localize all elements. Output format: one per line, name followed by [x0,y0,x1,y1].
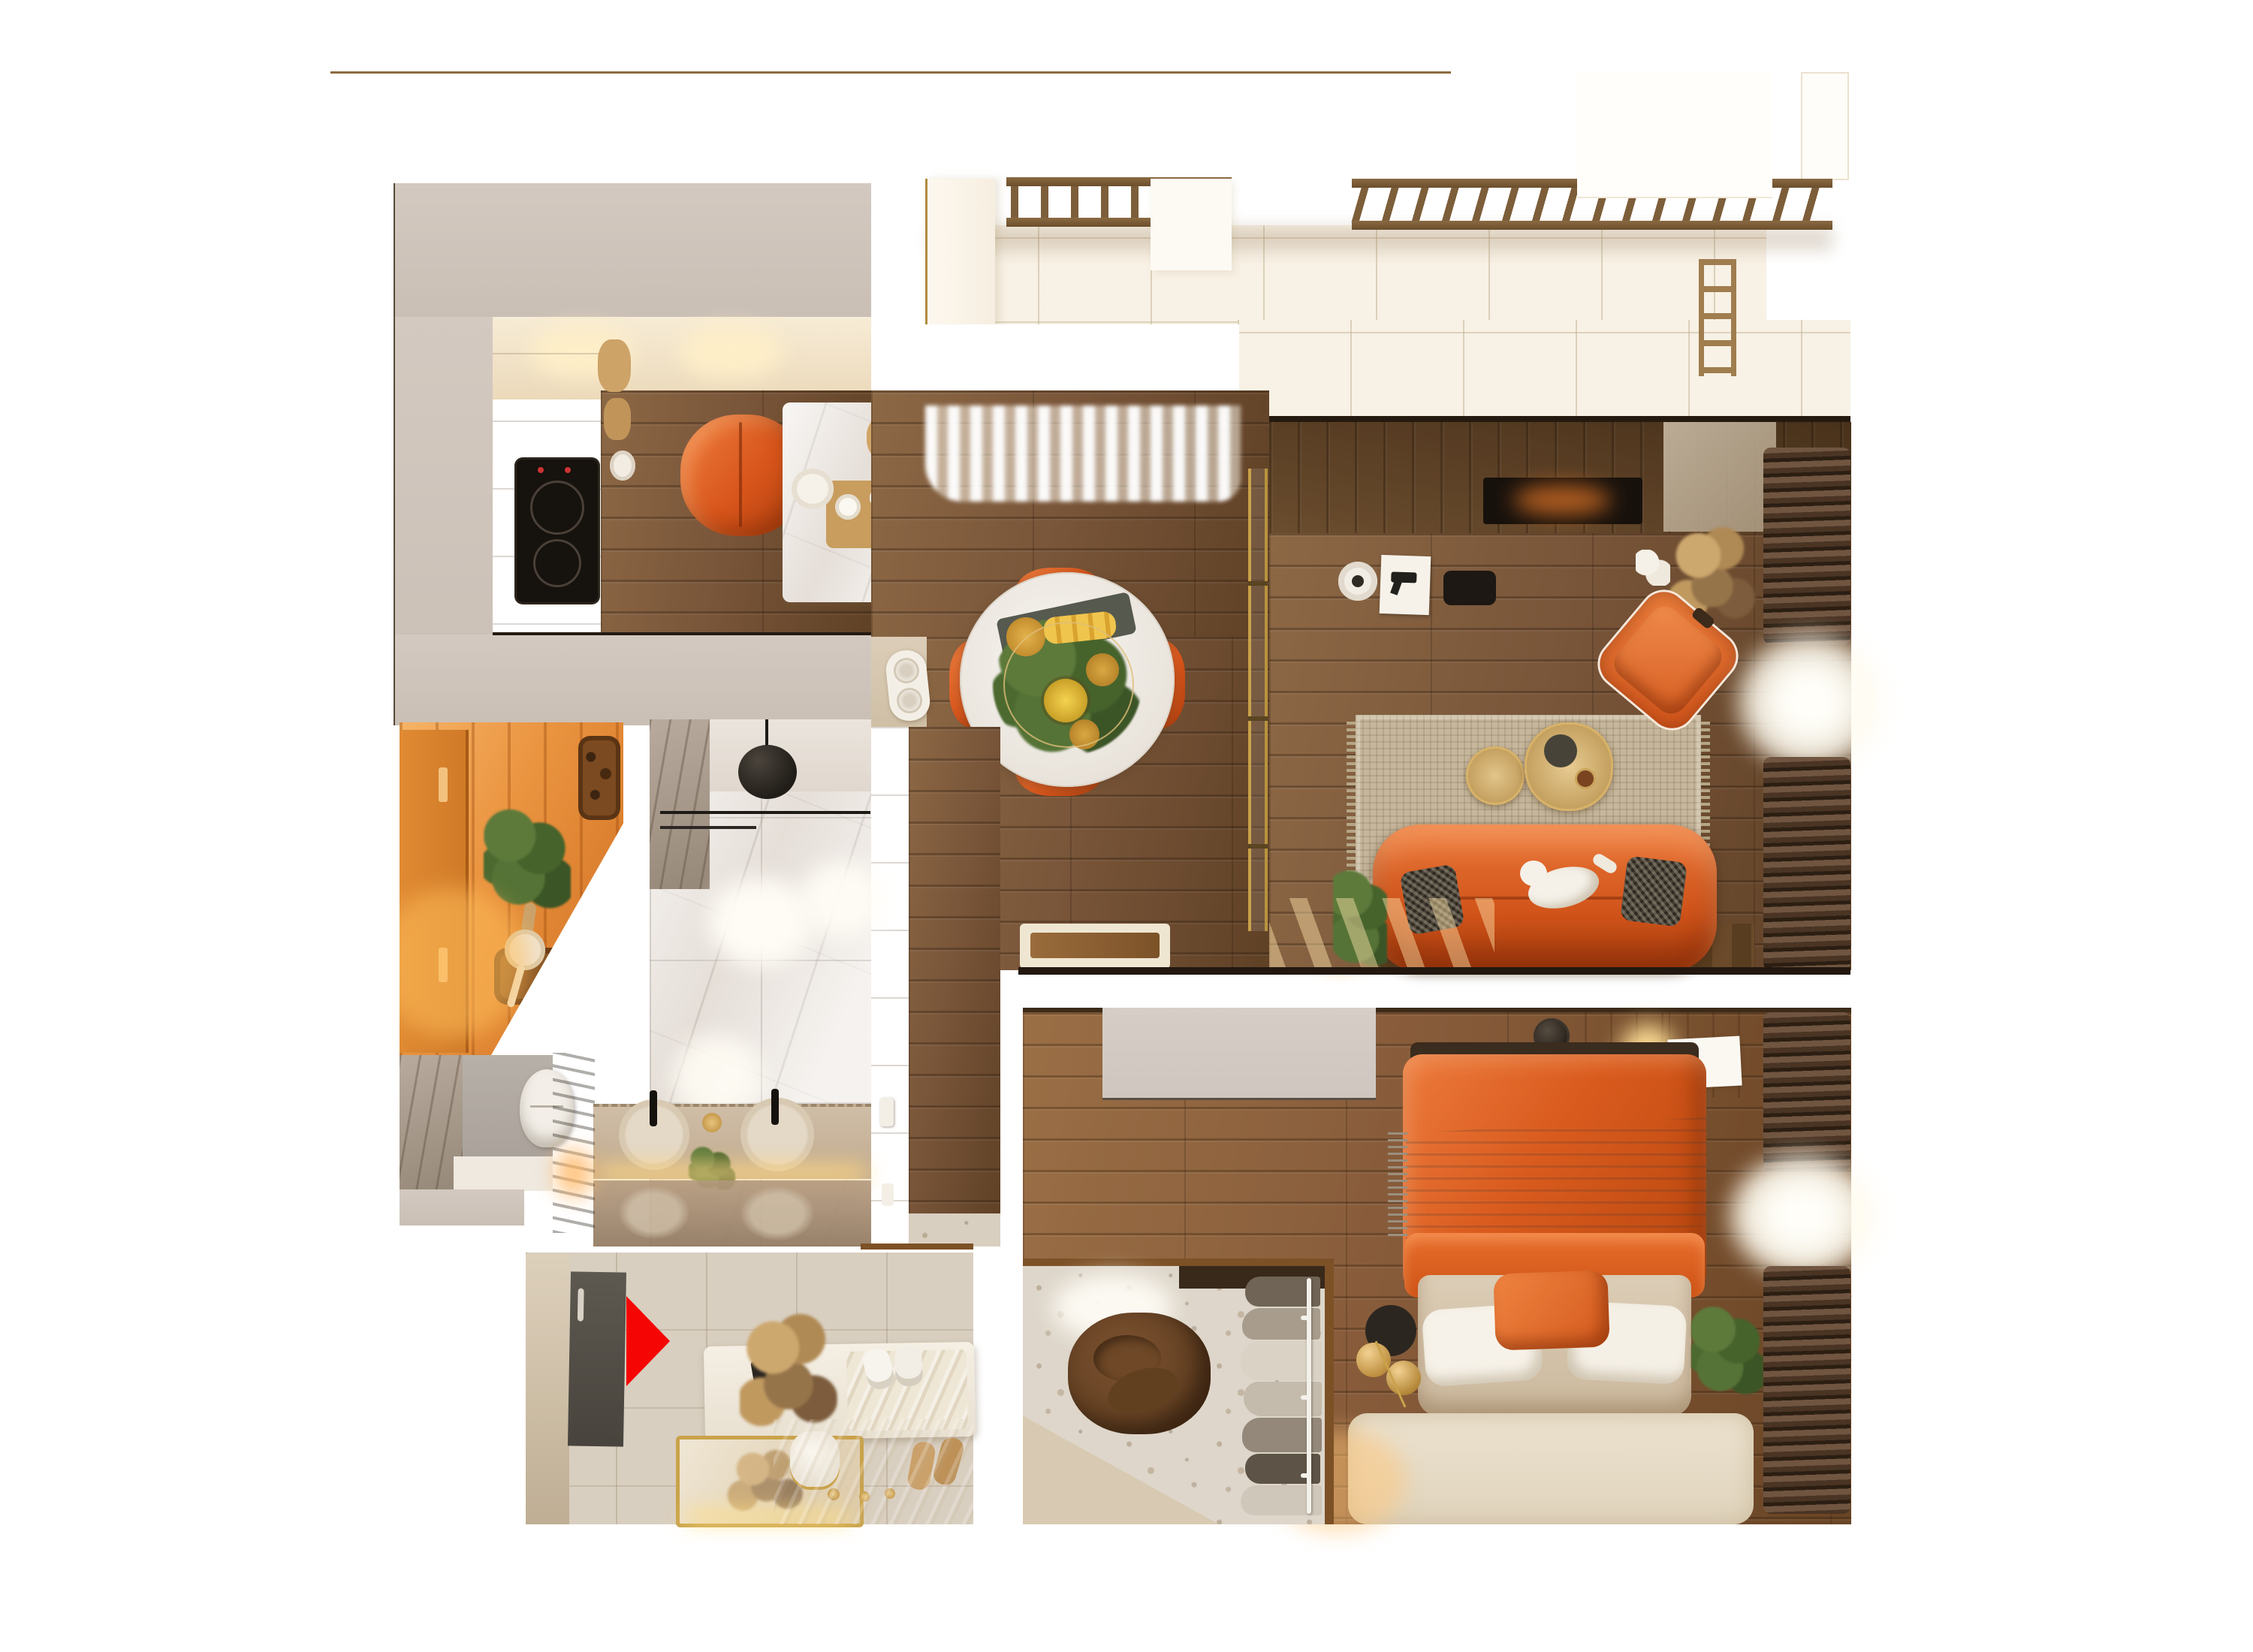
speaker-cone-2 [895,686,923,714]
kitchen-wall-top [395,183,871,317]
room-bathroom [650,719,871,1247]
soundbar [1443,571,1496,605]
revolver-frame [1380,555,1431,615]
tv-artwork [1483,478,1642,524]
dining-doormat [1020,924,1170,969]
bedroom-curtain-lower [1763,1266,1850,1514]
balcony-top-right-wall [1577,72,1772,198]
bean-bag [1068,1313,1211,1434]
coffee-table-small [1466,746,1525,805]
top-right-faint-frame [1801,72,1849,180]
rug-fringe-left [1347,719,1356,880]
railing-bottom-bar [1352,221,1832,230]
sofa-pillow-right [1620,855,1687,927]
sauna-heater [578,736,620,820]
room-entry [526,1244,973,1526]
throw-fringe [1388,1131,1407,1236]
pillow-orange-center [1493,1270,1609,1350]
entry-left-wall [526,1254,569,1524]
kitchen-cooktop [517,460,598,602]
bedroom-curtain-upper [1763,1012,1850,1171]
entry-top-line [861,1244,973,1250]
corridor-wall [871,727,909,1247]
kitchen-glow-2 [679,326,784,378]
burner-large [530,481,584,535]
entry-ribbed-floor [774,1419,973,1524]
reflected-sink-2 [740,1186,814,1241]
rack-hook-1 [1301,1316,1311,1320]
living-window-light [1735,631,1885,773]
sun-streaks [1269,898,1494,970]
partition-rail-left [1248,469,1251,931]
entry-door-mat [568,1271,626,1446]
living-bottom-wall-line [1018,967,1850,975]
shower-glass-line [660,811,870,814]
corridor-floor-transition [909,1213,1000,1247]
table-cup [1577,770,1594,787]
speaker-cone-1 [892,656,920,684]
plate [792,469,834,509]
closet-right-wall [1325,1259,1334,1524]
tray-cup-1 [835,494,861,520]
light-switch-1 [880,1098,894,1126]
faucet-2 [771,1089,779,1125]
room-closet [1023,1259,1334,1524]
sneaker-2 [894,1345,924,1387]
sauna-glow [377,888,527,1038]
birch-whisk [484,803,571,910]
closet-top-wall [1023,1259,1334,1266]
tv-glow [1513,485,1611,515]
wc-wall-band [400,1189,524,1225]
dining-sheer-curtain [925,405,1241,502]
chair-seam [739,422,742,527]
entrance-arrow [626,1296,670,1386]
room-wc [400,1053,595,1233]
wardrobe-top [1102,1008,1376,1100]
balcony-wall-pillar-b [1151,179,1232,270]
pendant-lamp [738,745,797,799]
rack-hook-3 [1301,1473,1311,1478]
wc-divider-wall [553,1053,595,1233]
wall-cutting-board-2 [604,398,631,440]
doormat-wood-board [1030,933,1160,958]
white-cat [1523,852,1607,915]
partition-crossbar-1 [1248,581,1268,586]
corridor-floor [909,727,1000,1216]
white-pebbles [1636,550,1670,586]
room-sauna [400,722,623,1059]
railing-shadow [931,227,1832,251]
dining-top-white-wall [871,324,1239,392]
partition-rail-right [1265,469,1268,931]
wall-cup [610,451,635,481]
burner-large-2 [533,539,581,587]
wall-cutting-board [598,339,631,392]
cat-tail [1591,852,1618,876]
speaker-ring [1338,562,1377,601]
vanity-underglow [597,1165,867,1182]
coffee-table-large [1525,722,1613,811]
floor-light-bloom-2 [800,862,882,937]
revolver-grip [1390,580,1402,595]
top-wall-line [330,71,1451,74]
gold-wire-stand [1003,622,1134,748]
kitchen-floor-edge-line [493,632,871,635]
living-curtain-upper [1763,448,1850,644]
bed [1403,1042,1706,1416]
door-handle [578,1289,584,1322]
living-curtain-lower [1763,757,1850,970]
cat-head [1520,861,1547,886]
bedroom-rug [1348,1413,1754,1524]
partition-crossbar-3 [1248,844,1268,849]
bathroom-gray-panel [650,719,710,889]
shower-glass-line-2 [660,826,756,829]
floor-light-bloom-1 [708,877,813,967]
vanity-mirror-reflection [593,1180,871,1247]
gold-glass-partition [1248,469,1268,931]
bedroom-window-light [1727,1152,1877,1280]
reflected-sink-1 [619,1186,689,1239]
faucet-1 [650,1090,657,1126]
wc-floor-light [454,1156,553,1191]
bedroom-plant [1691,1301,1763,1397]
clothes-rack [1241,1277,1325,1515]
balcony-ladder [1699,259,1736,376]
speaker-center [1352,575,1364,587]
table-dark-disc [1544,734,1577,767]
rack-hook-2 [1301,1395,1311,1400]
burner-indicator-2 [565,467,571,473]
soap-dish-gold [702,1113,722,1132]
light-switch-2 [882,1183,894,1206]
door-hinge-1 [439,767,448,802]
floor-plan-render [0,0,2253,1652]
burner-indicator [538,467,544,473]
partition-crossbar-2 [1248,716,1268,721]
room-corridor [871,727,1000,1247]
kitchen-wall-bottom [395,635,880,725]
divider-warm-glow [556,1149,592,1197]
